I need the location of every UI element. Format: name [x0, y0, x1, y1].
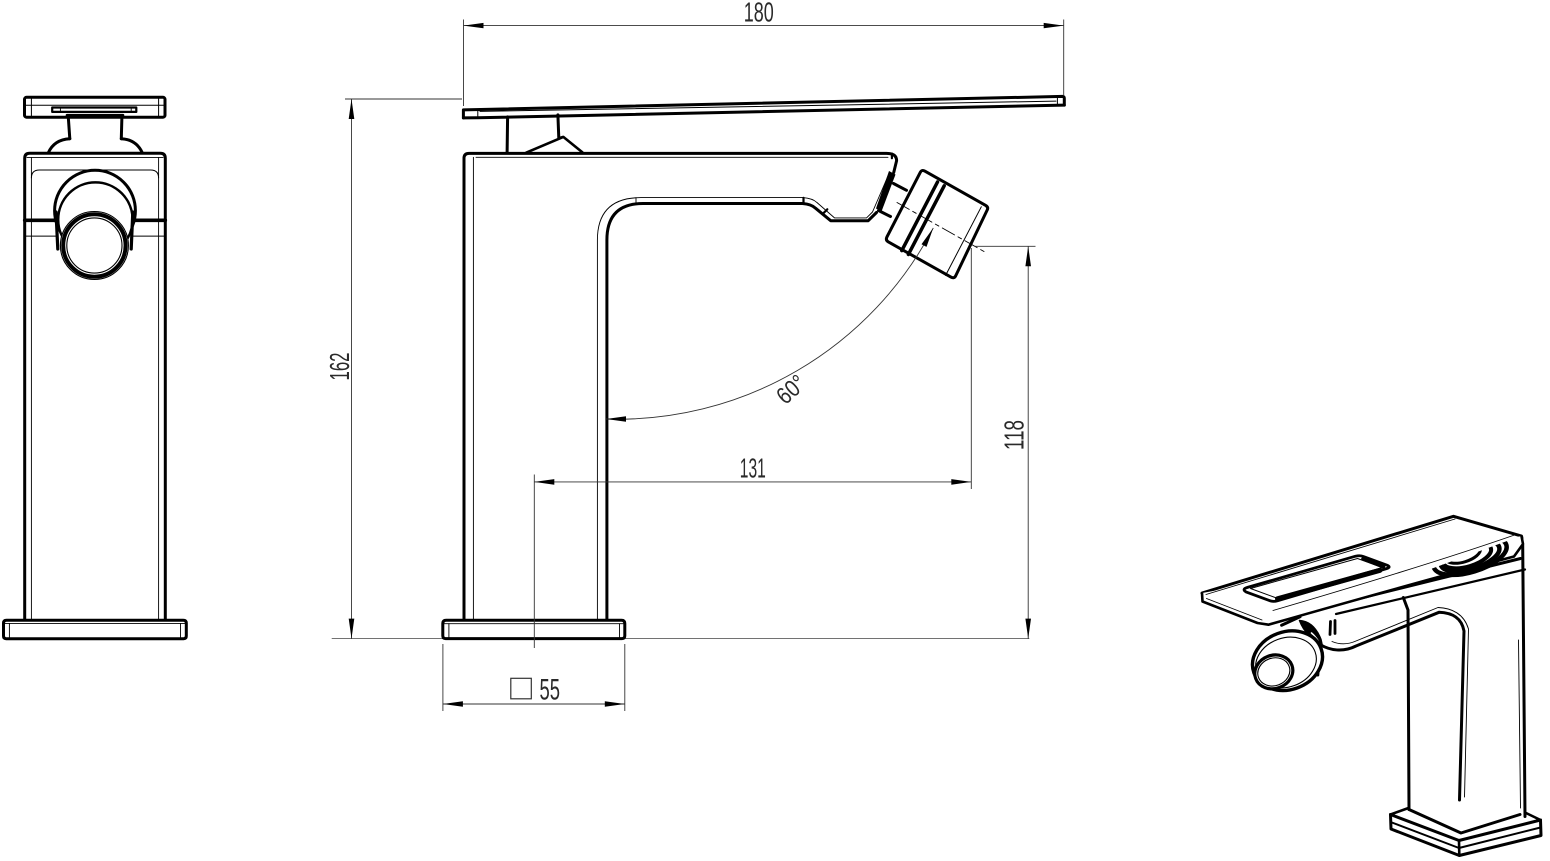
- svg-text:55: 55: [539, 674, 560, 707]
- svg-text:162: 162: [324, 353, 355, 381]
- svg-text:131: 131: [740, 453, 766, 484]
- svg-text:118: 118: [999, 420, 1030, 450]
- svg-text:180: 180: [744, 0, 774, 28]
